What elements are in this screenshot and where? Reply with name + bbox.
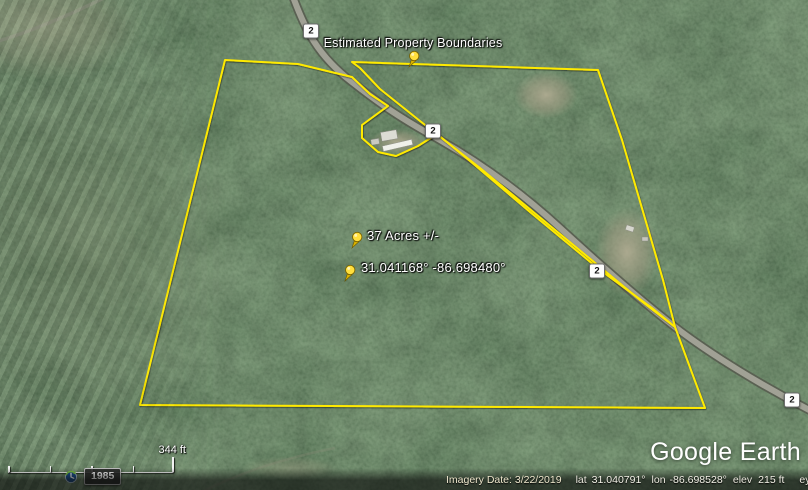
placemark-label-boundaries: Estimated Property Boundaries [324,36,503,50]
eye-alt-label: eye alt [799,474,808,486]
imagery-date: Imagery Date: 3/22/2019 [446,474,562,486]
elev-value: 215 ft [758,474,784,486]
placemark-label-acres: 37 Acres +/- [367,228,439,243]
lon-label: lon [652,474,666,486]
google-earth-watermark: Google Earth [650,438,801,467]
satellite-imagery [0,0,808,490]
lon-value: -86.698528° [670,474,727,486]
map-viewport[interactable]: Estimated Property Boundaries 37 Acres +… [0,0,808,490]
elev-label: elev [733,474,752,486]
route-shield[interactable]: 2 [303,24,319,39]
route-shield[interactable]: 2 [425,124,441,139]
historical-imagery-control[interactable]: 1985 [64,468,121,485]
cleared-area-top [514,71,578,119]
status-bar-items: Imagery Date: 3/22/2019 lat 31.040791° l… [446,473,808,487]
imagery-year-badge[interactable]: 1985 [84,468,121,485]
lat-value: 31.040791° [592,474,646,486]
clock-history-icon[interactable] [64,470,78,484]
placemark-label-coordinates: 31.041168° -86.698480° [361,260,506,275]
route-shield[interactable]: 2 [589,264,605,279]
lat-label: lat [576,474,587,486]
route-shield[interactable]: 2 [784,393,800,408]
